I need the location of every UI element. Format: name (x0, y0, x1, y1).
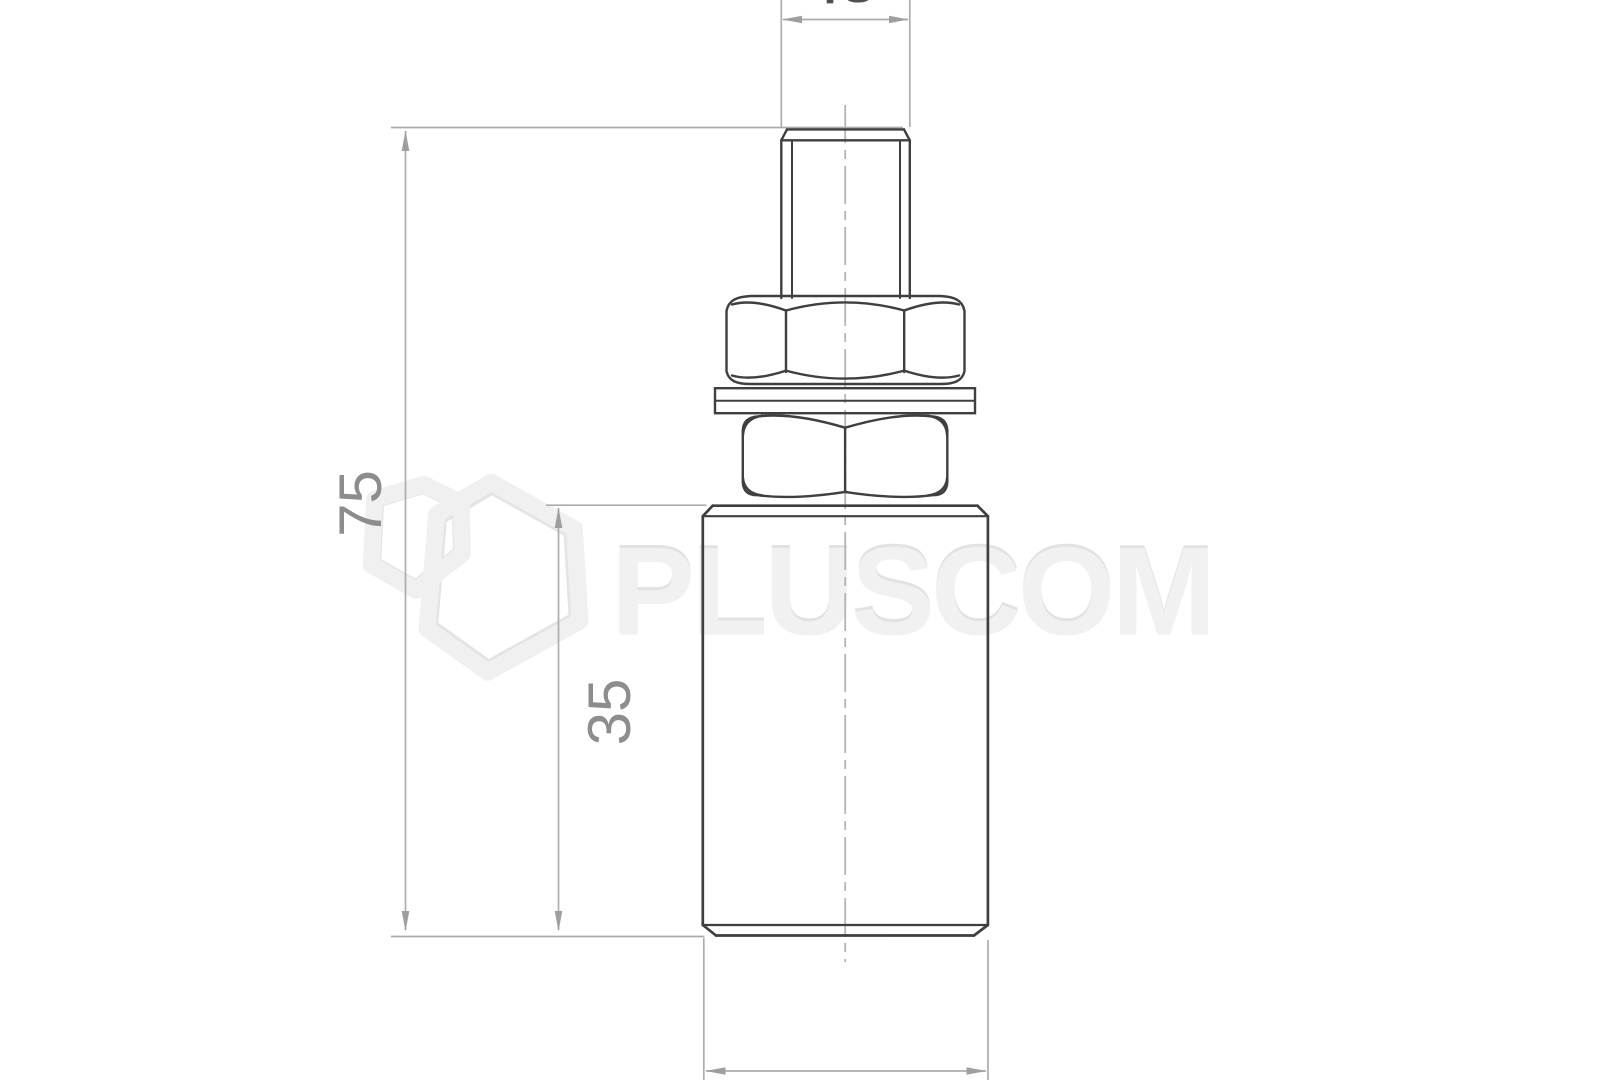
svg-text:75: 75 (327, 470, 394, 537)
svg-text:35: 35 (576, 679, 643, 746)
